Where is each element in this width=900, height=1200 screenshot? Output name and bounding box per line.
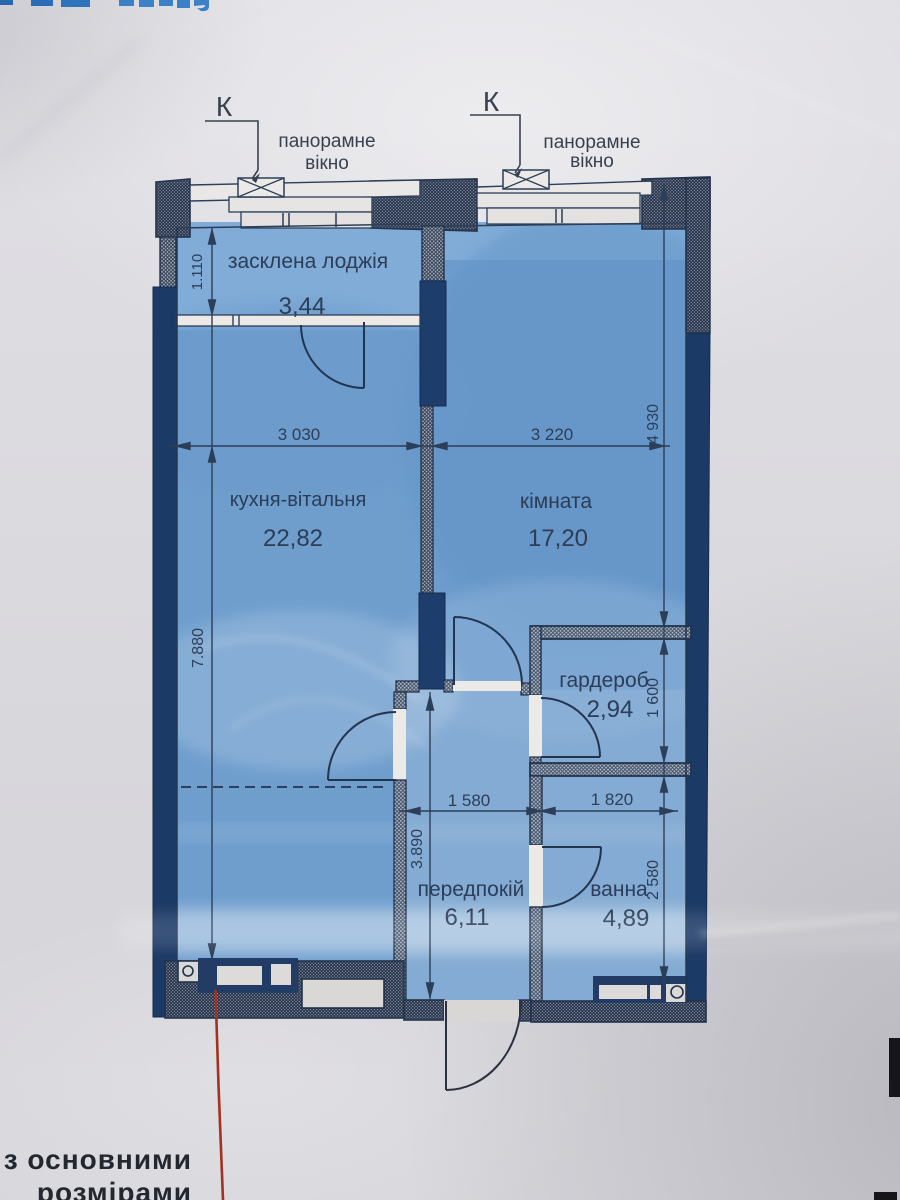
svg-text:2,94: 2,94 (587, 696, 634, 723)
svg-text:гардероб: гардероб (559, 669, 648, 692)
svg-text:22,82: 22,82 (263, 525, 323, 552)
svg-text:кімната: кімната (520, 490, 592, 513)
svg-text:К: К (483, 86, 500, 117)
svg-text:вікно: вікно (570, 151, 614, 172)
svg-text:вікно: вікно (305, 153, 349, 174)
svg-text:розмірами: розмірами (37, 1177, 192, 1200)
svg-text:1 820: 1 820 (591, 790, 634, 809)
svg-text:панорамне: панорамне (543, 132, 640, 153)
svg-text:ванна: ванна (590, 878, 648, 901)
svg-text:з основними: з основними (4, 1144, 192, 1175)
svg-text:17,20: 17,20 (528, 525, 588, 552)
svg-text:передпокій: передпокій (418, 878, 525, 901)
svg-text:засклена лоджія: засклена лоджія (228, 250, 388, 273)
svg-text:К: К (216, 91, 233, 122)
svg-text:3 220: 3 220 (531, 425, 574, 444)
svg-text:3,44: 3,44 (279, 293, 326, 320)
svg-text:1 580: 1 580 (448, 791, 491, 810)
svg-text:7.880: 7.880 (190, 628, 207, 668)
svg-text:3 030: 3 030 (278, 425, 321, 444)
svg-text:панорамне: панорамне (278, 131, 375, 152)
svg-text:кухня-вітальня: кухня-вітальня (230, 489, 367, 511)
svg-text:1.110: 1.110 (189, 254, 206, 290)
svg-text:3.890: 3.890 (409, 829, 426, 869)
svg-text:4 930: 4 930 (645, 404, 662, 444)
